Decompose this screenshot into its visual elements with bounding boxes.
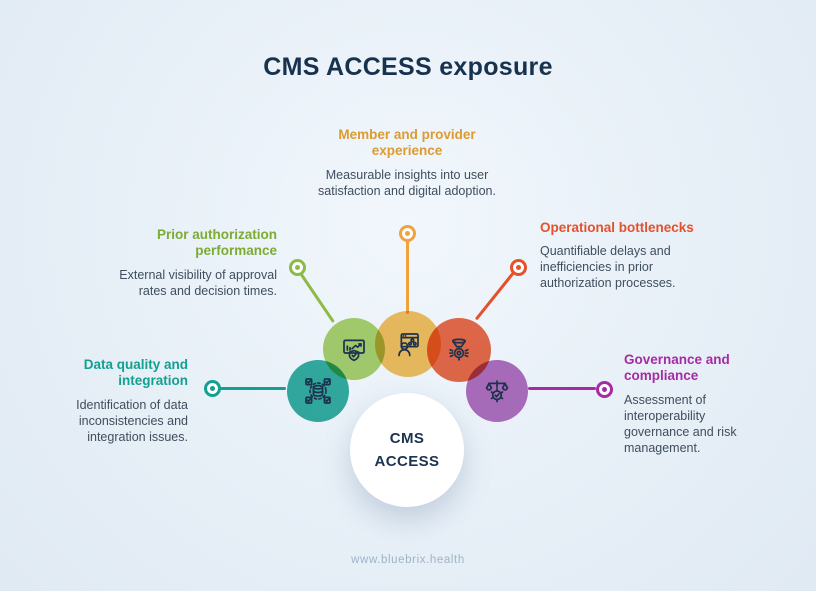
node-block-data-quality: Data quality and integration Identificat… [38,357,188,445]
hub-label: CMS ACCESS [375,427,440,474]
page-title: CMS ACCESS exposure [0,53,816,82]
node-description: Assessment of interoperability governanc… [624,392,760,456]
connector-marker-member-provider [399,225,416,242]
marker-dot [405,231,410,236]
node-title: Governance and compliance [624,352,760,385]
node-block-prior-authorization: Prior authorization performance External… [92,227,277,299]
node-description: Quantifiable delays and inefficiencies i… [540,243,700,291]
connector-marker-governance [596,381,613,398]
connector-line-prior-authorization [299,271,335,322]
database-check-icon [302,375,334,407]
node-title: Data quality and integration [38,357,188,390]
footer-url: www.bluebrix.health [0,554,816,566]
node-block-governance-compliance: Governance and compliance Assessment of … [624,352,760,456]
connector-line-governance [528,387,596,390]
connector-marker-data-quality [204,380,221,397]
marker-dot [295,265,300,270]
scale-gear-icon [481,375,513,407]
marker-dot [602,387,607,392]
circle-governance-compliance [466,360,528,422]
node-description: Identification of data inconsistencies a… [38,397,188,445]
node-title: Member and provider experience [312,127,502,160]
connector-line-data-quality [218,387,286,390]
central-hub: CMS ACCESS [350,393,464,507]
node-description: Measurable insights into user satisfacti… [312,167,502,199]
marker-dot [210,386,215,391]
connector-marker-operational [510,259,527,276]
user-window-icon [392,328,424,360]
connector-marker-prior-authorization [289,259,306,276]
funnel-gear-icon [443,334,475,366]
hub-label-line2: ACCESS [375,450,440,473]
node-title: Operational bottlenecks [540,220,700,236]
marker-dot [516,265,521,270]
chart-shield-icon [338,333,370,365]
hub-label-line1: CMS [375,427,440,450]
node-block-operational-bottlenecks: Operational bottlenecks Quantifiable del… [540,220,700,291]
infographic-canvas: CMS ACCESS exposure [0,0,816,591]
node-block-member-provider: Member and provider experience Measurabl… [312,127,502,199]
node-description: External visibility of approval rates an… [92,267,277,299]
connector-line-member-provider [406,240,409,314]
node-title: Prior authorization performance [92,227,277,260]
connector-line-operational [475,271,515,320]
